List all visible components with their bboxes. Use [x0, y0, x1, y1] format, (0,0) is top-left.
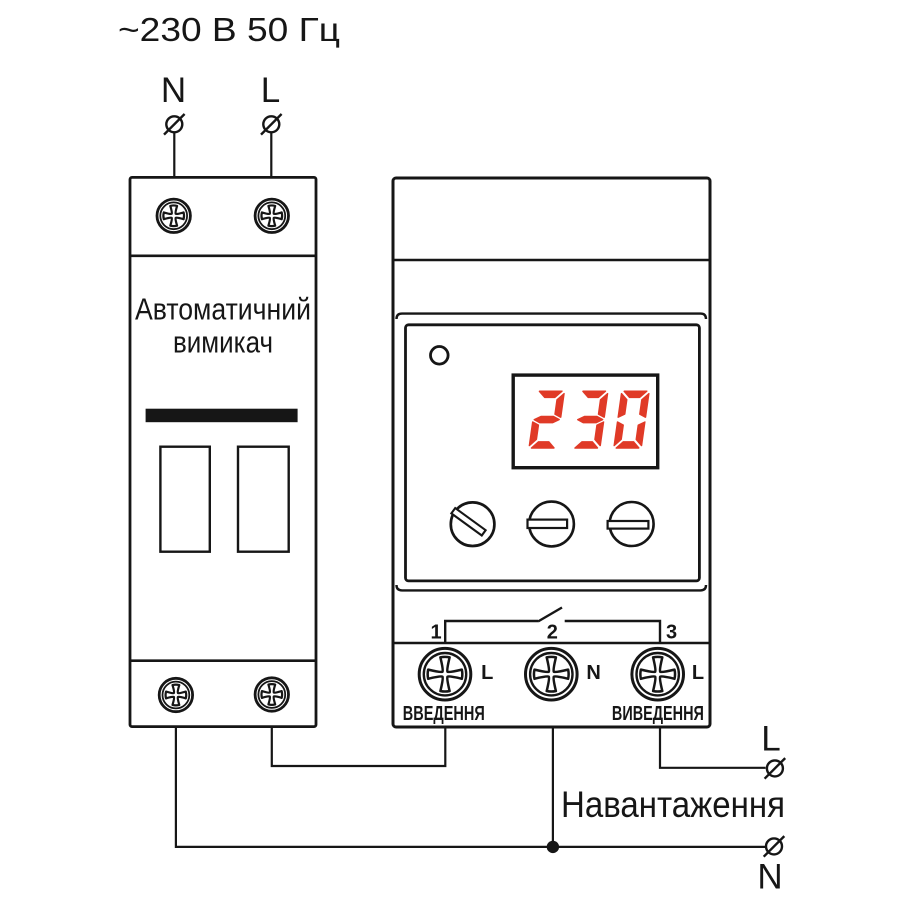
- svg-text:1: 1: [430, 622, 441, 644]
- svg-text:L: L: [261, 71, 280, 110]
- svg-text:Навантаження: Навантаження: [561, 784, 785, 825]
- svg-text:L: L: [692, 662, 704, 684]
- svg-text:ВВЕДЕННЯ: ВВЕДЕННЯ: [403, 703, 485, 725]
- svg-text:N: N: [586, 662, 600, 684]
- svg-text:3: 3: [666, 622, 677, 644]
- svg-text:N: N: [757, 858, 782, 897]
- svg-text:N: N: [161, 71, 186, 110]
- svg-text:L: L: [761, 720, 780, 759]
- svg-text:ВИВЕДЕННЯ: ВИВЕДЕННЯ: [612, 703, 704, 725]
- svg-text:Автоматичний: Автоматичний: [135, 293, 311, 327]
- svg-text:L: L: [481, 662, 493, 684]
- svg-text:вимикач: вимикач: [173, 326, 273, 360]
- svg-text:~230 В 50 Гц: ~230 В 50 Гц: [118, 12, 340, 49]
- svg-text:2: 2: [547, 622, 558, 644]
